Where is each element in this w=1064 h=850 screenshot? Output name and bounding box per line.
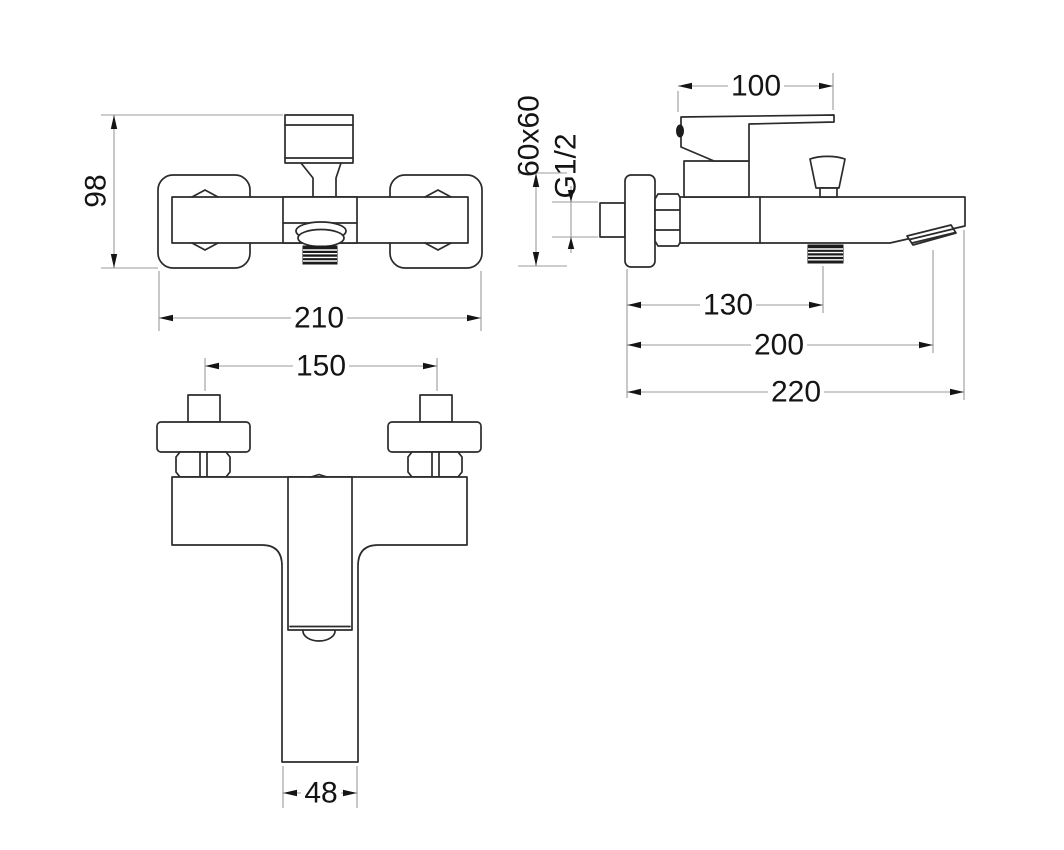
plan-left-flange [157,422,250,452]
dim-label-spout-width: 48 [304,777,337,810]
dim-label-front-height: 98 [80,174,113,207]
dim-label-front-width: 210 [294,302,344,335]
plan-right-flange [388,422,481,452]
drawing-sheet: 98 210 [0,0,1064,850]
front-threaded-outlet [303,246,337,264]
dim-label-shower-outlet-offset: 130 [703,289,753,322]
dim-48: 48 [283,766,357,810]
plan-inner-column [288,477,352,630]
side-flange [625,175,655,267]
front-handle [285,115,353,163]
side-threaded-outlet [808,245,843,263]
dim-label-handle-length: 100 [731,70,781,103]
front-view: 98 210 [80,115,483,335]
dim-200: 200 [627,250,933,362]
dim-label-hole-spacing: 150 [296,350,346,383]
dim-g12: G1/2 [550,133,599,253]
side-lever-handle [681,115,834,161]
technical-drawing-canvas: 98 210 [0,0,1064,850]
dim-150: 150 [205,350,437,392]
plan-left-nipple [188,395,220,422]
plan-right-nipple [420,395,452,422]
plan-view: 150 48 [157,350,481,810]
dim-label-flange-size: 60x60 [513,95,546,177]
side-diverter-knob [810,156,845,188]
dim-label-spout-reach: 200 [754,329,804,362]
side-lever-indicator-dot [677,125,684,137]
dim-label-thread-size: G1/2 [550,133,583,198]
dim-100: 100 [678,70,833,113]
front-handle-neck [301,163,341,197]
dim-label-overall-reach: 220 [771,376,821,409]
dim-220: 220 [627,230,964,409]
side-cartridge-base [684,161,749,197]
side-nut [655,194,681,246]
side-view: 100 60x60 G1/2 130 [513,70,966,409]
plan-right-nut [408,452,462,477]
dim-210: 210 [159,271,481,335]
side-nipple [600,203,625,237]
plan-left-nut [176,452,230,477]
